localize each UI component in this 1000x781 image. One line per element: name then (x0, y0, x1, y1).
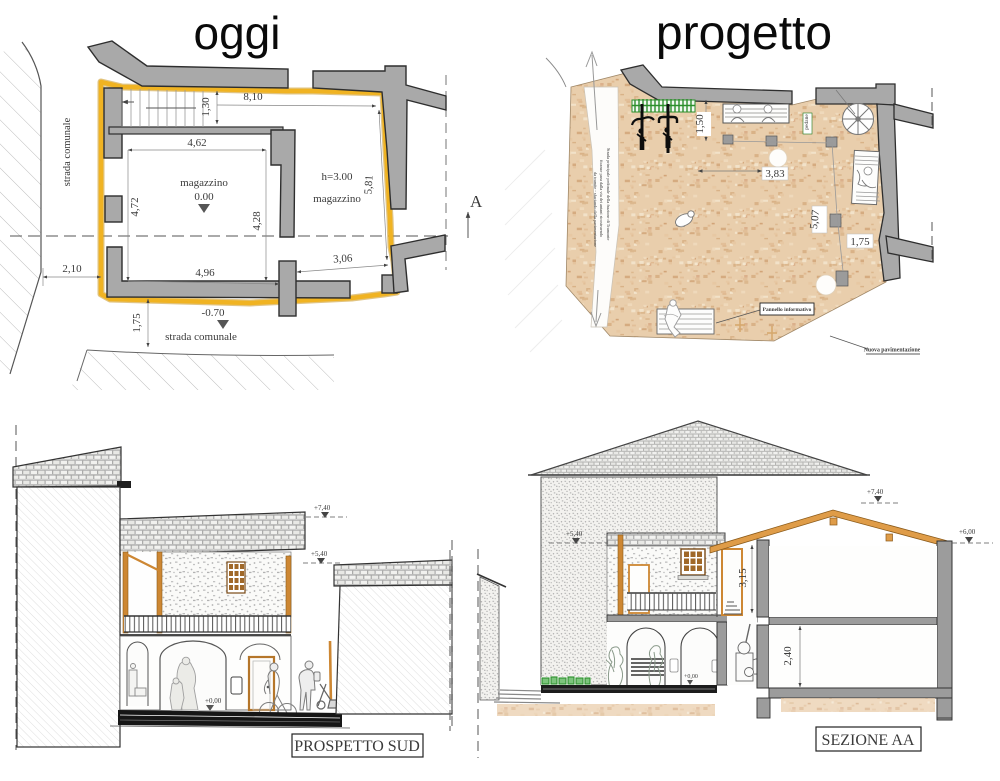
svg-text:ficanze para dalla via dei ant: ficanze para dalla via dei antani ricost… (599, 160, 604, 237)
svg-text:SEZIONE AA: SEZIONE AA (822, 732, 915, 749)
svg-text:3,15: 3,15 (737, 568, 749, 588)
svg-text:+7,40: +7,40 (867, 488, 884, 496)
svg-text:5,07: 5,07 (808, 209, 822, 230)
svg-text:4,72: 4,72 (129, 197, 141, 216)
svg-text:da tramite - sfaciando della p: da tramite - sfaciando della pavimentazi… (593, 172, 598, 247)
svg-text:+7,40: +7,40 (314, 504, 331, 512)
svg-text:-0.70: -0.70 (202, 307, 225, 319)
svg-text:1,75: 1,75 (850, 236, 870, 248)
svg-text:+5,40: +5,40 (311, 550, 328, 558)
svg-text:A: A (470, 192, 483, 211)
svg-text:2,10: 2,10 (62, 263, 82, 275)
svg-text:magazzino: magazzino (180, 177, 228, 189)
svg-text:4,28: 4,28 (251, 211, 263, 231)
svg-text:1,50: 1,50 (694, 114, 706, 134)
svg-text:magazzino: magazzino (313, 193, 361, 205)
svg-text:8,10: 8,10 (243, 91, 263, 103)
svg-text:3,83: 3,83 (765, 168, 785, 180)
svg-text:Nuova pavimentazione: Nuova pavimentazione (864, 348, 921, 354)
svg-text:2,40: 2,40 (782, 646, 794, 666)
svg-text:3,06: 3,06 (333, 252, 354, 265)
svg-text:+0,00: +0,00 (205, 697, 222, 705)
svg-text:Pannello informativo: Pannello informativo (763, 307, 812, 313)
svg-text:strada comunale: strada comunale (165, 331, 237, 343)
svg-text:+5,40: +5,40 (566, 530, 583, 538)
svg-text:1,30: 1,30 (200, 97, 212, 117)
svg-text:pedane: pedane (804, 114, 810, 130)
svg-text:h=3.00: h=3.00 (322, 171, 353, 183)
svg-text:4,96: 4,96 (195, 267, 215, 279)
svg-text:5,81: 5,81 (362, 175, 375, 195)
svg-text:PROSPETTO SUD: PROSPETTO SUD (294, 738, 420, 755)
svg-text:4,62: 4,62 (187, 137, 206, 149)
svg-text:1,75: 1,75 (131, 313, 143, 333)
svg-text:strada comunale: strada comunale (62, 117, 73, 186)
svg-text:+0,00: +0,00 (684, 674, 698, 680)
svg-text:progetto: progetto (656, 7, 832, 60)
svg-text:Strada principale pedonale del: Strada principale pedonale della frazion… (606, 148, 611, 240)
svg-text:oggi: oggi (194, 7, 281, 59)
svg-text:0.00: 0.00 (194, 191, 214, 203)
svg-text:+6,00: +6,00 (959, 528, 976, 536)
